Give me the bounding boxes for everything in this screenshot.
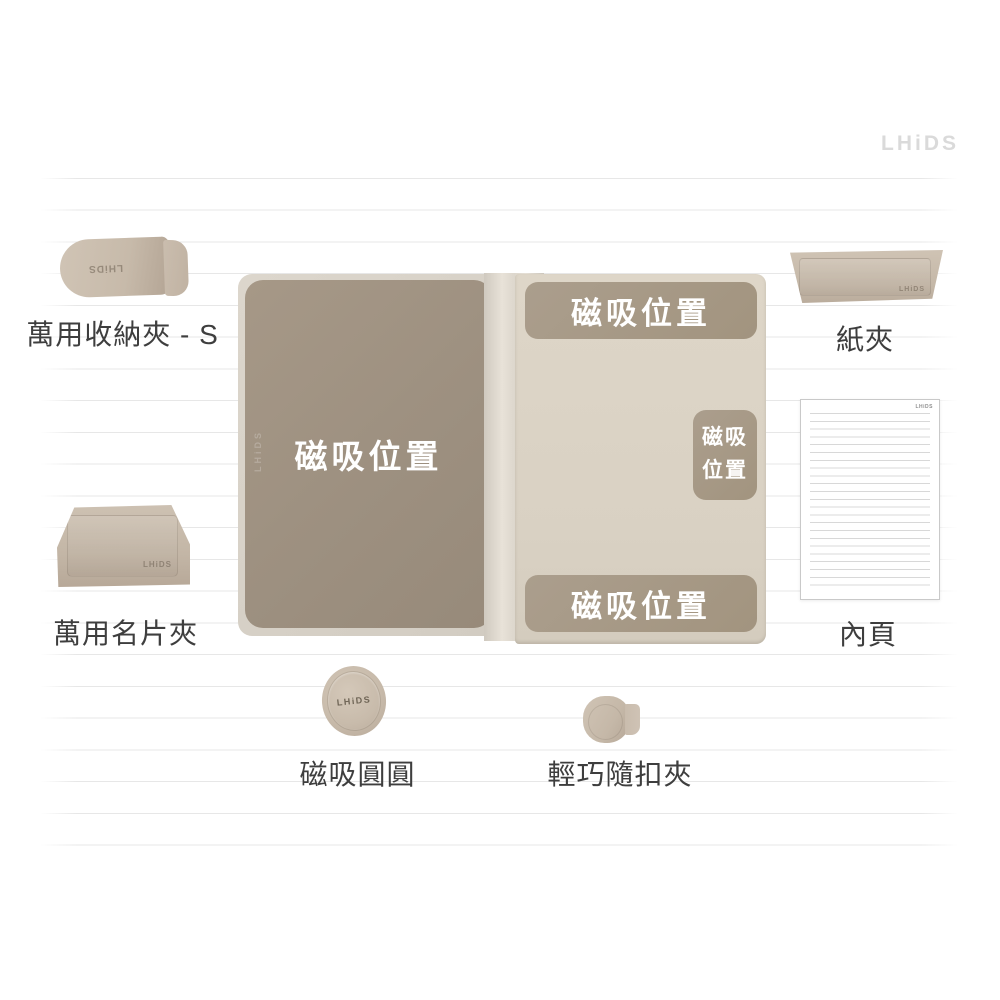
buckle-clip-label: 輕巧隨扣夾 [515, 753, 725, 793]
paper-clip-product-image: LHiDS [790, 250, 943, 303]
magnet-zone-bottom: 磁吸位置 [525, 575, 757, 632]
inner-page-product-image: LHiDS [800, 399, 940, 600]
card-holder-label: 萬用名片夾 [23, 612, 228, 652]
inner-page-label: 內頁 [818, 613, 918, 653]
buckle-clip-product-image [583, 696, 640, 743]
magnet-zone-side-label-line1: 磁吸 [702, 426, 748, 449]
buckle-clip-inner-ring [588, 704, 623, 740]
storage-clip-product-image: LHiDS [59, 236, 189, 298]
magnet-zone-side: 磁吸 位置 [693, 410, 757, 500]
magnet-zone-left-page: LHiDS 磁吸位置 [245, 280, 492, 628]
storage-clip-emboss: LHiDS [88, 262, 123, 274]
card-holder-emboss: LHiDS [143, 560, 172, 569]
magnet-zone-side-label: 磁吸 位置 [702, 422, 748, 487]
storage-clip-label: 萬用收納夾 - S [10, 313, 235, 353]
card-holder-product-image: LHiDS [57, 505, 190, 587]
magnet-zone-top: 磁吸位置 [525, 282, 757, 339]
magnet-zone-top-label: 磁吸位置 [571, 288, 711, 333]
inner-page-ruled-lines [810, 413, 930, 590]
magnet-zone-side-label-line2: 位置 [702, 459, 748, 482]
paper-clip-label: 紙夾 [815, 318, 915, 358]
magnet-disc-label: 磁吸圓圓 [255, 753, 460, 793]
notebook-open: LHiDS 磁吸位置 磁吸位置 磁吸 位置 磁吸位置 [236, 272, 766, 644]
storage-clip-arm [163, 240, 189, 297]
notebook-edge-emboss: LHiDS [253, 430, 263, 472]
magnet-zone-left-label: 磁吸位置 [295, 430, 443, 478]
paper-clip-emboss: LHiDS [899, 286, 925, 293]
buckle-clip-tab [625, 704, 640, 735]
brand-logo: LHiDS [880, 132, 960, 156]
product-infographic: LHiDS LHiDS 磁吸位置 磁吸位置 磁吸 位置 磁吸位置 LHiDS 萬… [0, 0, 1000, 1000]
inner-page-brand: LHiDS [916, 404, 934, 410]
storage-clip-body: LHiDS [59, 236, 171, 298]
magnet-zone-bottom-label: 磁吸位置 [571, 581, 711, 626]
